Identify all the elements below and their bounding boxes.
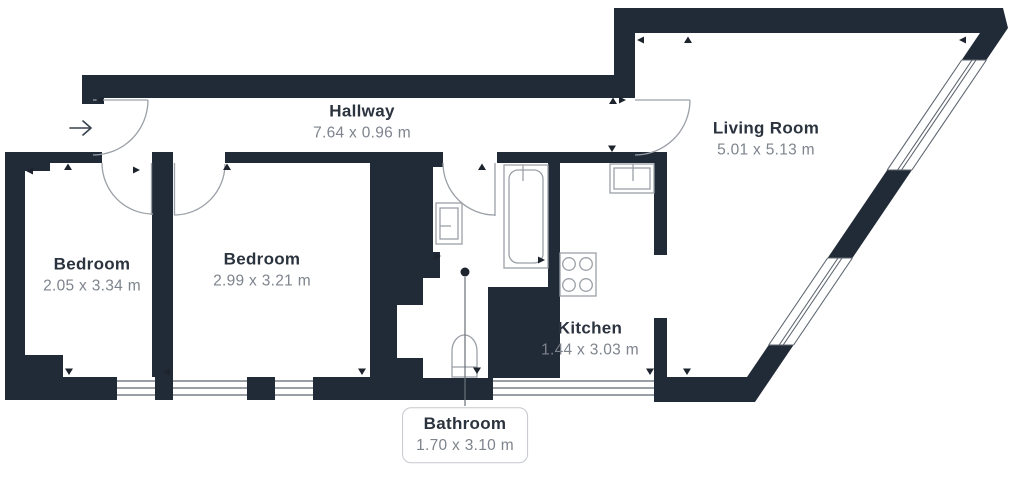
wall-kitchen-right-lower (654, 318, 667, 378)
wall-bedroom-divider (152, 152, 173, 400)
marker-left-icon (959, 37, 966, 44)
marker-up-icon (64, 164, 72, 171)
marker-up-icon (478, 164, 486, 171)
marker-down-icon (683, 369, 691, 376)
marker-left-icon (637, 37, 644, 44)
marker-down-icon (65, 369, 73, 376)
marker-right-icon (133, 167, 140, 174)
marker-up-icon (223, 164, 231, 171)
wall-left (5, 152, 25, 400)
bathtub-icon (504, 165, 548, 268)
entry-door (93, 100, 148, 155)
marker-down-icon (608, 146, 616, 153)
bedroom-1-door (102, 163, 153, 215)
marker-up-icon (684, 37, 692, 44)
living-room-door (635, 100, 690, 155)
marker-down-icon (358, 369, 366, 376)
wall-bedroom2-top (225, 152, 370, 163)
bathroom-sink-icon (436, 203, 462, 244)
room-name: Bathroom (416, 414, 514, 434)
floor-plan: Hallway 7.64 x 0.96 m Living Room 5.01 x… (0, 0, 1022, 500)
wall-bottom-left (5, 377, 117, 400)
window-bedroom2-right (275, 377, 313, 400)
wall-bath-kitchen-divider (548, 163, 560, 287)
leader-dot (461, 268, 470, 277)
wall-hallway-top (82, 75, 635, 98)
entry-arrow-icon (70, 121, 91, 135)
wall-kitchen-right-upper (654, 163, 667, 255)
wall-bedroom1-top (5, 152, 102, 163)
room-label-bathroom: Bathroom 1.70 x 3.10 m (402, 407, 528, 463)
kitchen-sink-icon (610, 164, 654, 193)
room-dimensions: 1.70 x 3.10 m (416, 437, 514, 455)
marker-down-icon (646, 369, 654, 376)
wall-living-outline (614, 8, 1008, 402)
window-living-lower (769, 258, 853, 345)
marker-up-icon (609, 98, 617, 105)
window-kitchen (493, 378, 654, 399)
window-living-upper (887, 60, 986, 170)
wall-bottom-pier (247, 377, 275, 400)
wall-left-ledge-bottom (25, 355, 63, 377)
window-bedroom2-left (173, 377, 247, 400)
bedroom-2-door (174, 163, 225, 215)
wall-kitchen-top (497, 152, 667, 163)
window-bedroom1 (117, 377, 155, 400)
wall-bath-kitchen-block (488, 287, 560, 380)
stove-icon (560, 253, 596, 296)
